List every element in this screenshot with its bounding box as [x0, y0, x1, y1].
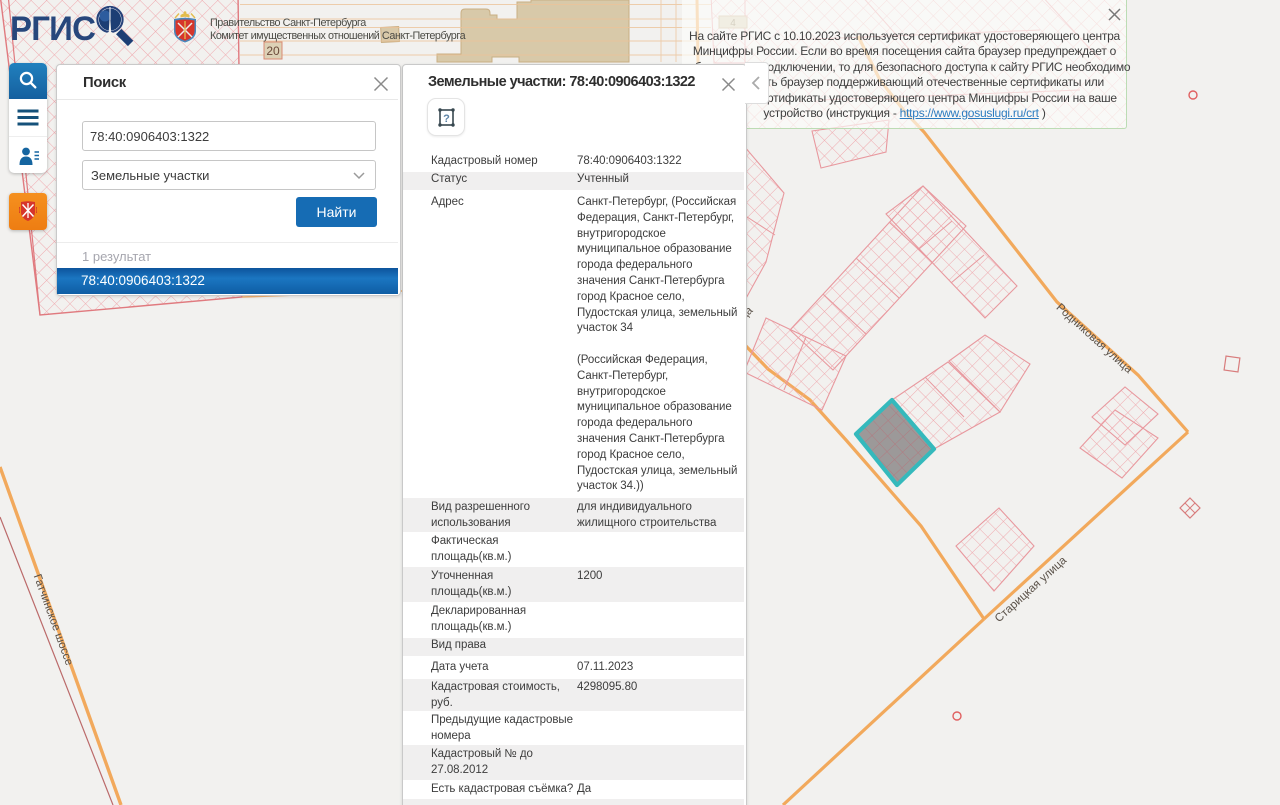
svg-text:?: ? [443, 113, 450, 125]
svg-text:Родниковая улица: Родниковая улица [1054, 302, 1135, 377]
svg-text:20: 20 [266, 44, 280, 58]
